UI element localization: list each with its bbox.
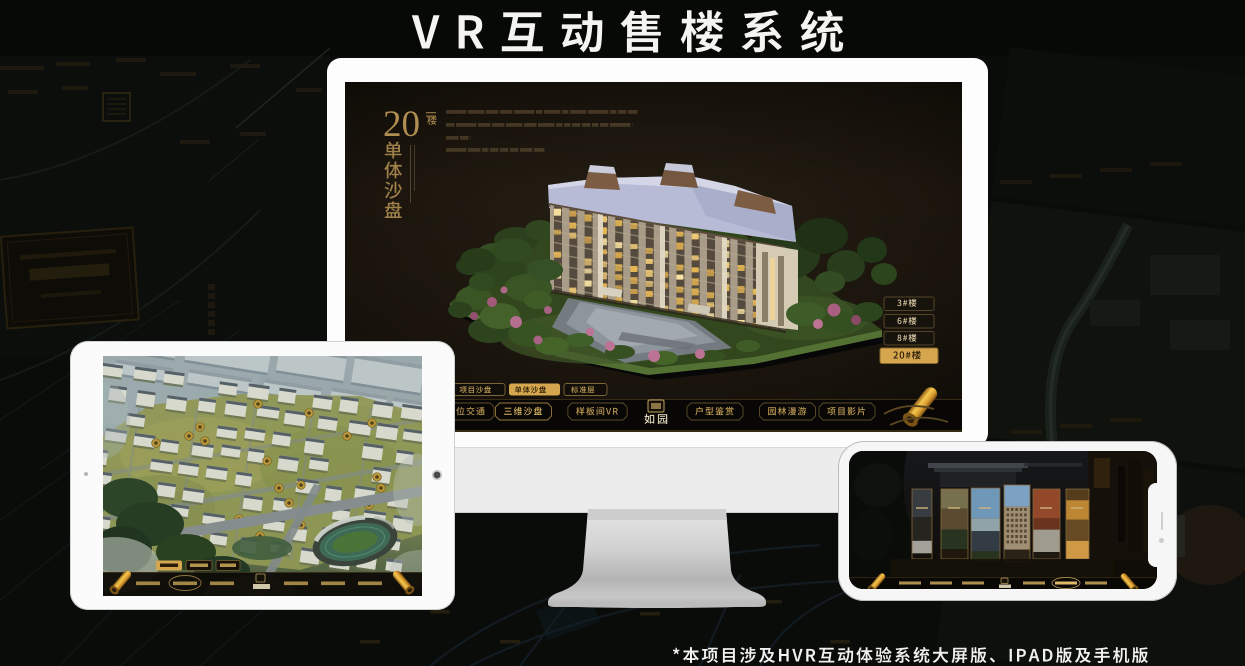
svg-text:20: 20 [383, 104, 420, 145]
